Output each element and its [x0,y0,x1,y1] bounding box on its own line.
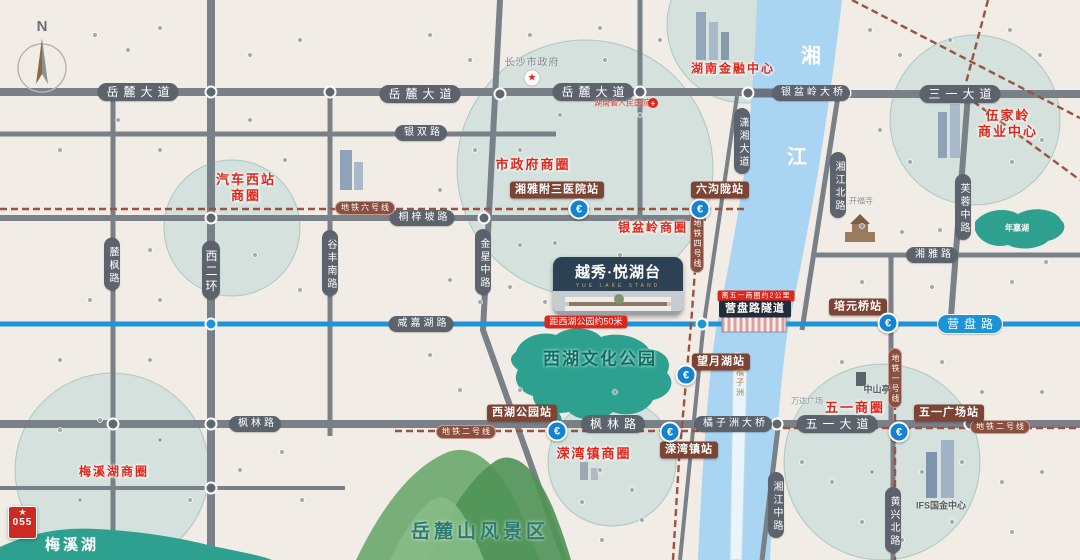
yingpan-tunnel-section [722,316,786,332]
landmark-wanda-plaza: 万达广场 [791,396,823,407]
lake-label-meixi: 梅溪湖 [45,534,99,555]
station-badge-liugoulong: 六沟陇站 [691,182,749,199]
biz-label-qichexizhan: 汽车西站 商圈 [216,172,276,205]
road-pill-furong-middle-road: 芙蓉中路 [955,174,971,240]
station-badge-wuyi-square: 五一广场站 [914,405,984,422]
yingpan-tunnel-badge: 营盘路隧道 [719,301,791,318]
road-pill-huangxing-north-road: 黄兴北路 [885,487,901,553]
island-label-juzizhou: 橘子洲 [735,368,746,398]
biz-label-meixihu: 梅溪湖商圈 [79,465,149,480]
property-brand-chinese: 越秀·悦湖台 [553,261,683,282]
road-pill-yuelu-avenue-west: 岳麓大道 [97,83,178,101]
road-pill-xiangya-road: 湘雅路 [906,247,958,263]
road-pill-west-second-ring: 西二环 [202,241,220,300]
station-badge-xiangya-hospital: 湘雅附三医院站 [510,182,604,199]
landmark-changsha-government: 长沙市政府 [505,54,560,69]
road-pill-yingpan-road: 营盘路 [937,314,1003,334]
road-pill-xianjiahu-road: 咸嘉湖路 [389,316,454,332]
lake-label-nianjia: 年嘉湖 [1005,223,1029,234]
road-pill-xiangjiang-middle-road: 湘江中路 [768,472,784,538]
road-pill-jinxing-middle-road: 金星中路 [475,229,491,295]
road-pill-xiaoxiang-avenue: 潇湘大道 [734,108,750,174]
station-badge-peiyuanqiao: 培元桥站 [829,299,887,316]
road-pill-lufeng-road: 麓枫路 [104,238,120,291]
road-node [742,87,755,100]
compass-north-label: N [37,18,48,35]
biz-label-wujialing-line1: 伍家岭 [978,108,1038,124]
biz-label-qichexizhan-line1: 汽车西站 [216,172,276,188]
landmark-ifs: IFS国金中心 [916,499,966,512]
biz-label-wujialing: 伍家岭 商业中心 [978,108,1038,141]
property-distance-badge: 距西湖公园约50米 [544,316,627,329]
road-pill-fenglin-road-west: 枫林路 [229,416,281,432]
road-node [494,88,507,101]
property-brand-english: YUE LAKE STAND [553,283,683,289]
metro-line2-pill-east: 地铁二号线 [970,420,1030,434]
metro-icon: € [690,199,711,220]
metro-line4-pill: 地铁四号线 [690,213,704,273]
road-pill-yuelu-avenue-mid: 岳麓大道 [379,85,460,103]
scenic-label-yuelushan: 岳麓山风景区 [411,517,549,544]
road-pill-wuyi-avenue: 五一大道 [796,415,877,433]
road-pill-yinpenling-bridge: 银盆岭大桥 [772,85,850,101]
station-badge-xihu-park: 西湖公园站 [487,405,557,422]
landmark-kaifu-temple: 开福寺 [849,196,873,207]
route-node [696,318,709,331]
road-pill-yinshuang-road: 银双路 [395,125,447,141]
metro-icon: € [569,199,590,220]
road-node [205,482,218,495]
biz-label-hunan-finance: 湖南金融中心 [691,62,775,77]
road-pill-juzizhou-bridge: 橘子洲大桥 [694,416,772,432]
road-pill-xiangjiang-north-road: 湘江北路 [830,152,846,218]
road-node [324,86,337,99]
biz-label-yinpenling: 银盆岭商圈 [618,221,688,236]
property-building-render [553,291,683,315]
road-node [107,418,120,431]
road-node [205,86,218,99]
brand-055-badge: ★ 055 [8,506,37,539]
metro-icon: € [878,313,899,334]
metro-icon: € [660,422,681,443]
road-node [771,418,784,431]
metro-icon: € [547,421,568,442]
biz-label-wuyi: 五一商圈 [825,400,885,416]
landmark-renmin-hospital: 湖南省人民医院 [594,98,650,109]
road-node [205,418,218,431]
station-badge-rongwanzhen: 溁湾镇站 [660,442,718,459]
location-map: N 岳麓大道 岳麓大道 岳麓大道 银双路 桐梓坡路 咸嘉湖路 银盆岭大桥 三一大… [0,0,1080,560]
landmark-zhongshanting: 中山亭 [863,383,890,396]
metro-line2-pill-west: 地铁二号线 [436,425,496,439]
river-label-xiang: 湘 [801,40,821,69]
biz-label-shizhengfu: 市政府商圈 [495,157,570,173]
park-label-xihu-culture-park: 西湖文化公园 [543,345,657,370]
biz-label-qichexizhan-line2: 商圈 [216,188,276,204]
road-node [205,212,218,225]
biz-label-rongwanzhen: 溁湾镇商圈 [556,446,631,462]
road-pill-sanyi-avenue: 三一大道 [919,85,1000,103]
metro-icon: € [889,422,910,443]
metro-line1-pill: 地铁一号线 [888,348,902,408]
road-pill-fenglin-road: 枫林路 [581,415,645,433]
hospital-cross-icon: + [648,98,658,108]
metro-icon: € [676,365,697,386]
badge-number: 055 [9,518,36,528]
property-card: 越秀·悦湖台 YUE LAKE STAND [553,257,683,315]
biz-label-wujialing-line2: 商业中心 [978,124,1038,140]
route-node [205,318,218,331]
road-pill-tongzipo-road: 桐梓坡路 [390,210,455,226]
river-label-jiang: 江 [787,141,807,170]
road-pill-gufeng-south-road: 谷丰南路 [322,230,338,296]
metro-line6-pill: 地铁六号线 [335,201,395,215]
road-node [478,212,491,225]
compass: N [14,18,70,102]
government-star-icon: ★ [524,70,541,87]
